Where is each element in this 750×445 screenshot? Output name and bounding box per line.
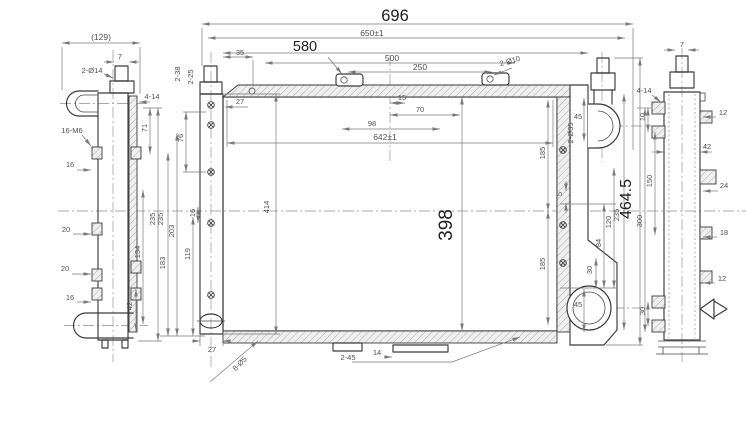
dim-35: 35 [236,48,244,57]
dim-42-width: 42 [703,142,711,151]
mount-tab [700,170,716,184]
dim-185-upper: 185 [538,147,547,160]
mount-tab [131,261,141,273]
callout-16-m6: 16-M6 [61,126,82,135]
dim-30-right: 30 [585,266,594,274]
dim-580: 580 [293,39,317,55]
top-mount-tab [482,73,509,85]
callout-2-38: 2-38 [173,66,182,81]
dim-398: 398 [436,209,457,241]
mount-tab [700,271,712,283]
dim-500: 500 [385,53,399,63]
mount-tab [92,223,102,235]
callout-2d14: 2-Ø14 [82,66,103,75]
bottom-tab [333,343,362,351]
dim-18: 18 [720,228,728,237]
dim-20-a: 20 [62,225,70,234]
wing-fitting [700,299,714,319]
dim-12-top: 12 [719,108,727,117]
dim-250: 250 [413,62,427,72]
callout-2-25: 2-25 [186,69,195,84]
drawing-canvas: (129) 7 2-Ø14 4-14 16-M6 16 20 20 16 71 … [0,0,750,445]
left-view-filler-neck [115,66,128,81]
top-tank [223,85,570,97]
dim-129: (129) [91,32,111,42]
mount-tab [652,126,665,138]
dim-10: 10 [638,113,647,121]
dim-27-bottom: 27 [208,345,216,354]
callout-2-45: 2-45 [340,353,355,362]
dim-70: 70 [416,105,424,114]
bolt [208,122,215,129]
dim-71: 71 [140,124,149,132]
bottom-tank [223,331,557,343]
dim-7-left: 7 [118,52,122,61]
callout-2d10: 2-Ø10 [499,54,521,68]
dim-650: 650±1 [360,28,384,38]
dim-45-bottom: 45 [574,300,582,309]
callout-4-14-right: 4-14 [636,86,651,95]
dim-98: 98 [368,119,376,128]
mount-tab [92,147,102,159]
dim-183: 183 [158,257,167,270]
dim-84: 84 [594,239,603,247]
bolt [208,292,215,299]
dim-7-right: 7 [680,40,684,49]
mount-tab [652,102,665,114]
dim-12-bottom: 12 [718,274,726,283]
dim-464-5: 464.5 [618,179,635,219]
dim-24: 24 [720,181,728,190]
callout-2d35: 2-Ø35 [566,123,575,144]
right-side-view: 7 4-14 10 150 300 12 42 24 18 12 30 [635,40,728,362]
dim-16-bottom: 16 [66,293,74,302]
dim-20-b: 20 [61,264,69,273]
dim-119: 119 [183,248,192,260]
mount-tab [92,288,102,300]
dim-150: 150 [645,175,654,188]
dim-414: 414 [262,201,271,214]
dim-696: 696 [381,7,409,25]
inlet-elbow [588,104,620,148]
dim-27-top: 27 [236,97,244,106]
dim-642: 642±1 [373,132,397,142]
dim-134: 134 [133,246,142,259]
dim-203: 203 [167,225,176,238]
radiator-technical-drawing: (129) 7 2-Ø14 4-14 16-M6 16 20 20 16 71 … [0,0,750,445]
main-front-view: 696 650±1 580 500 250 35 2-Ø10 2-38 2-25… [156,7,652,382]
dim-14: 14 [373,348,381,357]
dim-42: 42 [125,302,134,310]
wing-fitting [714,301,727,317]
mount-tab [131,147,141,159]
mount-tab [652,320,665,332]
filler-neck-right [597,58,609,73]
mount-tab [652,296,665,308]
top-mount-tab [336,74,363,86]
bottom-tab [393,345,448,352]
dim-235-left: 235 [156,213,165,226]
callout-4-14-left: 4-14 [144,92,159,101]
dim-30-rv: 30 [638,307,647,315]
left-side-view: (129) 7 2-Ø14 4-14 16-M6 16 20 20 16 71 … [60,32,162,362]
dim-185-lower: 185 [538,258,547,271]
callout-8d5: 8-Ø5 [231,355,249,373]
dim-76: 76 [176,134,185,142]
dim-15: 15 [398,93,406,102]
filler-neck-left [204,66,217,82]
dim-5: 5 [555,192,564,196]
dim-16-bracket: 16 [188,209,197,217]
dim-16-top: 16 [66,160,74,169]
dim-300: 300 [635,215,644,228]
mount-tab [92,269,102,281]
bolt [208,102,215,109]
dim-45-top: 45 [574,112,582,121]
